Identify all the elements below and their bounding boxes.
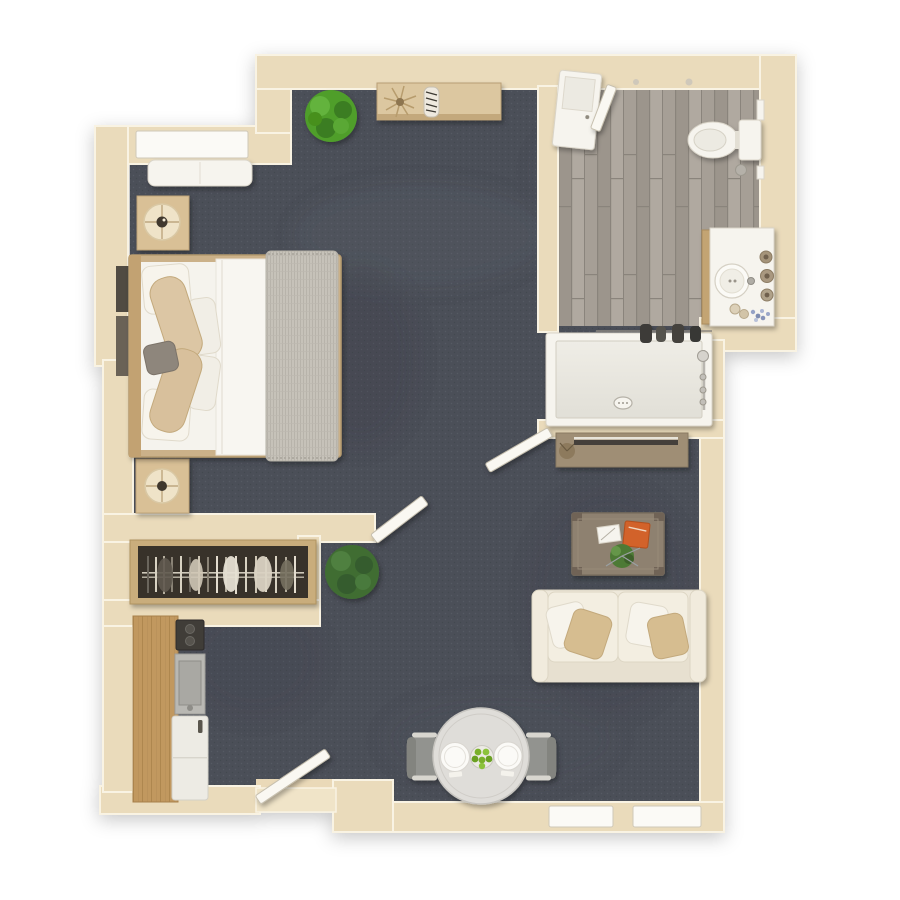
tv [574,440,678,445]
cooktop-burner [186,625,195,634]
refrigerator-handle [198,720,203,733]
toilet-seat [694,129,726,151]
kitchen-sink-basin [179,661,201,705]
notebook [597,525,621,544]
sofa [532,590,706,682]
corner-plant [305,90,357,142]
duvet [216,259,272,455]
tv-console [556,433,688,467]
shower-head [698,351,709,362]
sink-drain-2 [734,280,737,283]
bottom-window-right [633,806,701,827]
console-table [377,83,501,120]
closet-side-plant [325,545,379,599]
coffee-table [572,513,664,575]
shower-tub [546,324,712,426]
orange-book [623,521,650,548]
headboard [129,255,141,457]
zebra-decor [424,87,439,117]
knit-throw-blanket [266,251,338,461]
kitchen-counter [133,616,178,802]
sofa-arm-left [532,590,548,682]
kitchen-faucet [187,705,193,711]
closet [130,540,316,604]
nightstand-top [137,196,189,250]
vanity-sink-basin [720,269,744,293]
toilet-tank [739,120,761,160]
sink-drain [729,280,732,283]
towel-bar [757,100,764,120]
bedroom-partition-wall [103,514,375,542]
robe-hook [633,79,639,85]
storage-cabinet [552,70,602,150]
bottom-window-left [549,806,613,827]
bottom-step-wall [333,780,393,832]
wall-art [116,266,129,376]
bedroom-window [136,131,248,158]
kitchen [133,616,208,802]
toilet-hinge [735,131,739,149]
floor-plan-image [0,0,900,900]
cooktop-burner-2 [186,637,195,646]
toilet [688,120,761,160]
toilet-paper-holder [736,165,747,176]
sofa-arm-right [690,590,706,682]
soap-jars [760,251,774,301]
vanity [702,228,774,326]
vanity-faucet [748,278,755,285]
top-wall [256,55,796,89]
apartment-plan [95,55,796,832]
towel-bar-2 [757,166,764,179]
bed [129,251,341,461]
floor-plan-svg [0,0,900,900]
nightstand-bottom [136,459,189,513]
refrigerator-seam [173,757,207,758]
accent-pillow [142,340,180,376]
robe-hook-2 [686,79,693,86]
fruit-bowl [471,746,494,770]
